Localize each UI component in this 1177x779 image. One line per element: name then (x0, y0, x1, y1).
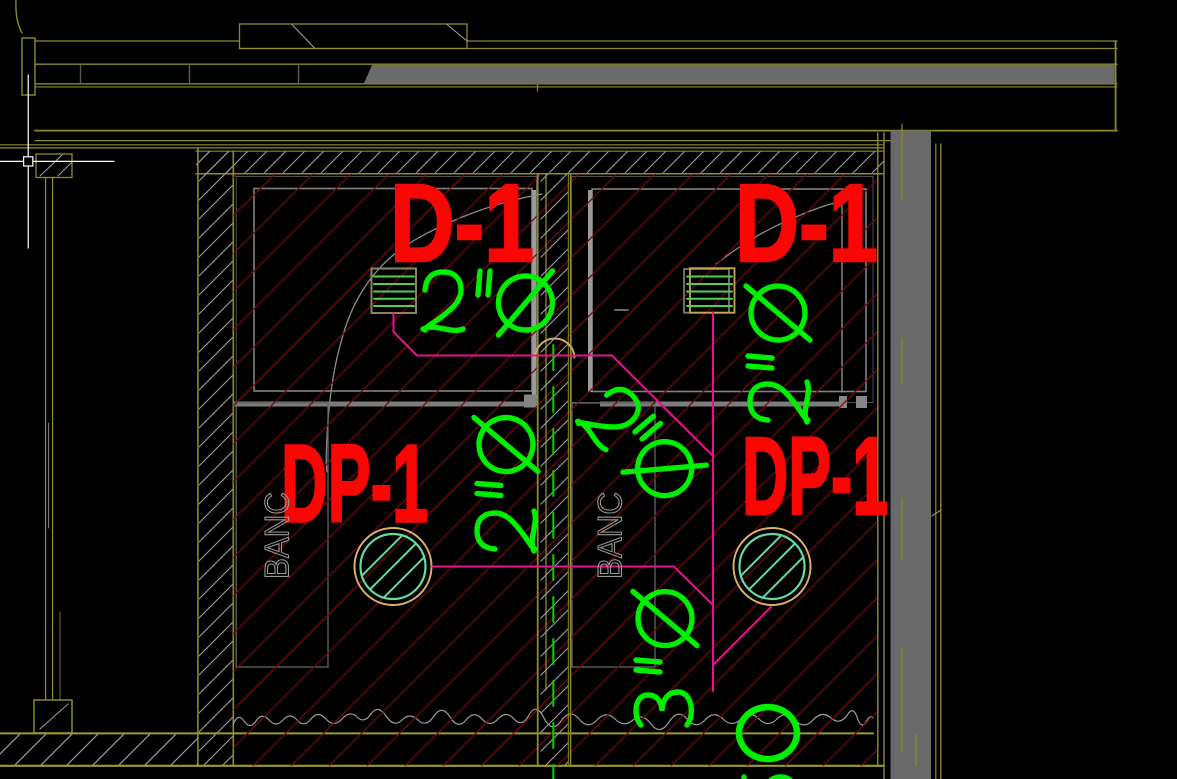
svg-text:D-1: D-1 (390, 162, 534, 285)
svg-text:DP-1: DP-1 (742, 415, 888, 538)
svg-text:D-1: D-1 (735, 162, 878, 285)
svg-text:BANC: BANC (259, 492, 297, 579)
svg-text:DP-1: DP-1 (281, 423, 428, 546)
svg-text:BANC: BANC (592, 492, 630, 579)
